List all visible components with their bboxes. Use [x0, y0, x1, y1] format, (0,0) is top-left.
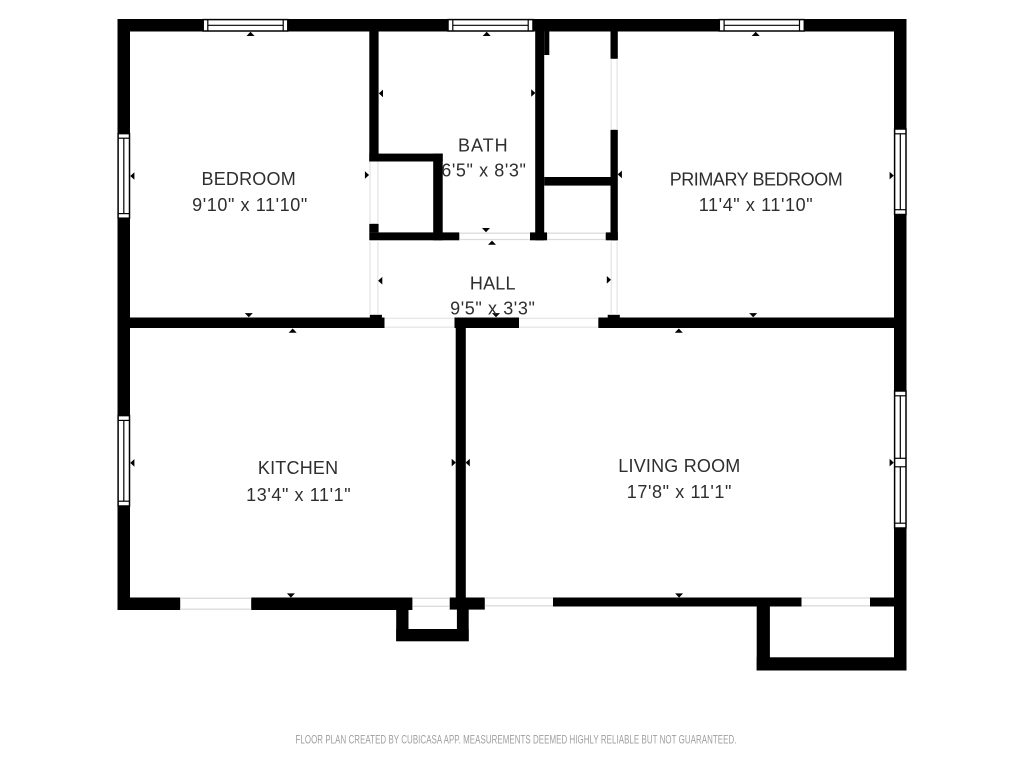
- svg-text:9'10" x 11'10": 9'10" x 11'10": [192, 195, 308, 215]
- svg-text:FLOOR PLAN CREATED BY CUBICASA: FLOOR PLAN CREATED BY CUBICASA APP. MEAS…: [296, 732, 737, 746]
- svg-text:13'4" x 11'1": 13'4" x 11'1": [246, 485, 351, 505]
- svg-text:11'4" x 11'10": 11'4" x 11'10": [699, 195, 813, 215]
- svg-text:KITCHEN: KITCHEN: [258, 458, 338, 478]
- svg-text:17'8" x 11'1": 17'8" x 11'1": [627, 482, 732, 502]
- svg-text:9'5" x 3'3": 9'5" x 3'3": [450, 299, 535, 319]
- svg-text:BEDROOM: BEDROOM: [201, 169, 295, 189]
- svg-text:PRIMARY BEDROOM: PRIMARY BEDROOM: [670, 170, 843, 190]
- svg-text:BATH: BATH: [458, 136, 509, 156]
- svg-text:HALL: HALL: [470, 274, 516, 294]
- svg-text:6'5" x 8'3": 6'5" x 8'3": [441, 161, 526, 181]
- svg-text:LIVING ROOM: LIVING ROOM: [618, 456, 740, 476]
